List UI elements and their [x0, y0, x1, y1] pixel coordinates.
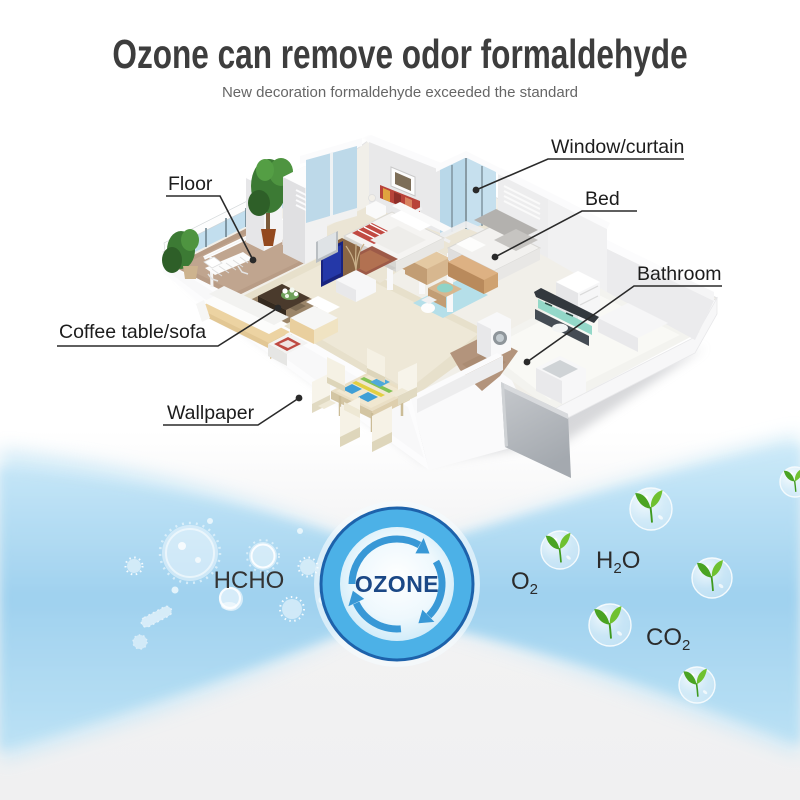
svg-text:OZONE: OZONE [355, 571, 439, 597]
svg-text:Coffee table/sofa: Coffee table/sofa [59, 321, 206, 343]
svg-text:Wallpaper: Wallpaper [167, 402, 255, 424]
svg-text:Bathroom: Bathroom [637, 263, 722, 285]
svg-text:HCHO: HCHO [214, 567, 285, 594]
svg-text:Window/curtain: Window/curtain [551, 136, 684, 158]
svg-text:Bed: Bed [585, 188, 620, 210]
svg-text:New decoration formaldehyde ex: New decoration formaldehyde exceeded the… [222, 84, 578, 101]
svg-text:Floor: Floor [168, 173, 213, 195]
svg-text:Ozone can remove odor formalde: Ozone can remove odor formaldehyde [112, 31, 687, 77]
